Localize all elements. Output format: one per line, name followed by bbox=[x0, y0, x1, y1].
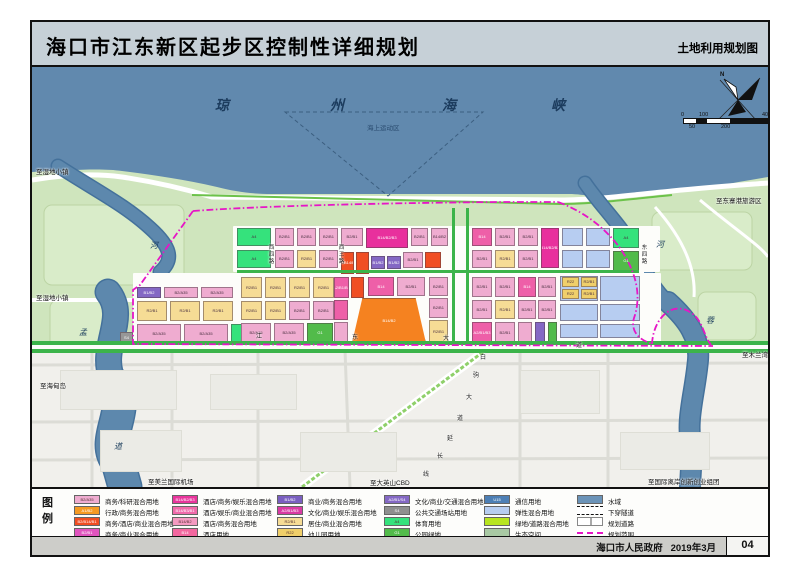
land-block: B2/A35 bbox=[201, 287, 233, 298]
land-block bbox=[560, 304, 598, 321]
planned-road-symbol bbox=[577, 517, 603, 526]
land-block: B2/B1 bbox=[538, 277, 556, 297]
land-block: B14 bbox=[472, 228, 492, 246]
destination-label: 至木兰湾 bbox=[742, 349, 768, 359]
river-name-char: 河 bbox=[656, 239, 664, 250]
legend-swatch: B2/A35 bbox=[74, 495, 100, 504]
legend-label: 商务/酒店/商业混合用地 bbox=[105, 518, 174, 528]
urban-block bbox=[620, 432, 710, 470]
legend-label: 酒店/娱乐/商业混合用地 bbox=[203, 507, 272, 517]
land-block bbox=[562, 228, 583, 246]
land-block bbox=[334, 322, 348, 343]
legend-swatch: A2/B1/S4 bbox=[384, 495, 410, 504]
river-name-char: 道 bbox=[114, 441, 122, 452]
destination-label: 至湿地小镇 bbox=[36, 166, 69, 176]
legend-swatch bbox=[484, 506, 510, 515]
vertical-road-label: 西四路 bbox=[268, 245, 275, 266]
legend-label: 通信用地 bbox=[515, 496, 541, 506]
land-block bbox=[351, 277, 364, 298]
land-block: B2/B1 bbox=[429, 277, 448, 296]
land-block: B2/B1 bbox=[472, 250, 492, 268]
land-block: R2/B1 bbox=[265, 277, 286, 298]
land-block: A4 bbox=[237, 250, 271, 268]
legend-label: 弹性混合用地 bbox=[515, 507, 554, 517]
land-block: R2/B1 bbox=[581, 289, 597, 299]
land-block: B2/A35 bbox=[274, 323, 304, 343]
river-name-char: 孟 bbox=[79, 327, 87, 338]
legend-label: 文化/商业/交通混合用地 bbox=[415, 496, 484, 506]
legend-swatch: A1/B2 bbox=[74, 506, 100, 515]
legend-label: 行政/商务混合用地 bbox=[105, 507, 159, 517]
destination-label: 至海甸岛 bbox=[40, 380, 66, 390]
land-block bbox=[334, 300, 348, 320]
road-name-char: 线 bbox=[423, 469, 429, 478]
legend-swatch bbox=[577, 495, 603, 504]
map-type-label: 土地利用规划图 bbox=[678, 40, 759, 56]
destination-label: 至东寨港旅游区 bbox=[716, 195, 762, 205]
land-block: R2/B1 bbox=[265, 301, 286, 320]
road-name-char: 大 bbox=[443, 333, 449, 342]
urban-block bbox=[60, 370, 177, 410]
land-block: B2/B1 bbox=[403, 252, 423, 268]
land-block: B14/B2 bbox=[352, 298, 426, 343]
footer-bar: 海口市人民政府 2019年3月 04 bbox=[32, 536, 768, 555]
road-name-char: 长 bbox=[437, 451, 443, 460]
urban-block bbox=[520, 370, 600, 414]
legend-swatch: B14/B2/B3 bbox=[172, 495, 198, 504]
land-block: A2/B1/B3 bbox=[334, 277, 349, 298]
land-block bbox=[548, 322, 557, 343]
scale-bar bbox=[683, 118, 768, 124]
road-name-char: 大 bbox=[466, 392, 472, 401]
legend-label: 规划道路 bbox=[608, 518, 634, 528]
land-block: B2/B1 bbox=[518, 300, 536, 319]
legend-title: 图例 bbox=[41, 495, 54, 527]
land-block: B2/B1 bbox=[411, 228, 428, 246]
legend-swatch: A2/B1/B3 bbox=[277, 506, 303, 515]
land-block: R2/B1 bbox=[289, 277, 310, 298]
land-block: B2/B1 bbox=[495, 228, 515, 246]
title-bar: 海口市江东新区起步区控制性详细规划 土地利用规划图 bbox=[32, 22, 768, 67]
land-block: B2/B1 bbox=[518, 228, 538, 246]
land-block bbox=[562, 250, 583, 268]
road-name-char: 江 bbox=[256, 331, 262, 340]
land-block: B1/B2 bbox=[137, 287, 161, 298]
land-block: B2/B1 bbox=[472, 277, 492, 297]
date-label: 2019年3月 bbox=[671, 543, 716, 554]
sea-name-char: 海 bbox=[442, 95, 456, 115]
road-name-char: 延 bbox=[447, 433, 453, 442]
land-block: B14 bbox=[368, 277, 394, 296]
land-block: B2/B1 bbox=[297, 228, 316, 246]
land-block bbox=[600, 304, 640, 321]
land-block: G1 bbox=[307, 323, 333, 343]
land-block: R2/B1 bbox=[170, 301, 200, 321]
land-block: B2/B1 bbox=[275, 250, 294, 268]
land-block: A4 bbox=[613, 228, 639, 248]
land-block bbox=[600, 276, 640, 301]
legend-swatch: U15 bbox=[484, 495, 510, 504]
legend-label: 文化/商业/娱乐混合用地 bbox=[308, 507, 377, 517]
scale-label: 50 bbox=[689, 124, 695, 130]
land-block: B2/B1 bbox=[397, 277, 425, 296]
government-label: 海口市人民政府 bbox=[596, 543, 663, 554]
urban-block bbox=[100, 430, 182, 472]
marine-zone-label: 海上运动区 bbox=[367, 122, 400, 132]
road-name-char: 东 bbox=[352, 332, 358, 341]
legend-swatch: B1/B2 bbox=[277, 495, 303, 504]
legend-swatch bbox=[484, 517, 510, 526]
legend: 图例 B2/A35商务/科研混合用地A1/B2行政/商务混合用地B2/B14/B… bbox=[32, 487, 768, 538]
plan-sheet-page: 海口市江东新区起步区控制性详细规划 土地利用规划图 bbox=[0, 0, 800, 566]
land-block: B2/B1 bbox=[313, 301, 334, 320]
land-block bbox=[425, 252, 441, 268]
land-block: B2/B1 bbox=[429, 298, 448, 318]
destination-label: 至国际离岸创新创业组团 bbox=[648, 476, 720, 486]
land-block: B1/B2 bbox=[371, 256, 385, 269]
land-block bbox=[586, 250, 610, 268]
plan-sheet: 海口市江东新区起步区控制性详细规划 土地利用规划图 bbox=[30, 20, 770, 557]
land-block: B2/B1 bbox=[275, 228, 294, 246]
sea-name-char: 州 bbox=[330, 95, 344, 115]
legend-label: 体育用地 bbox=[415, 518, 441, 528]
page-title: 海口市江东新区起步区控制性详细规划 bbox=[46, 31, 420, 60]
land-block: B2/B1 bbox=[472, 300, 492, 319]
land-block: B2/B1 bbox=[538, 300, 556, 319]
land-block: R2/B1 bbox=[297, 250, 316, 268]
legend-swatch: B14/B2 bbox=[172, 517, 198, 526]
vertical-road-label: 西三路 bbox=[338, 245, 345, 266]
land-use-map: N A4A4B2/B1B2/B1B2/B1B2/B1B14/B2/B3B2/B1… bbox=[32, 67, 768, 487]
land-block: R2/B1 bbox=[137, 301, 167, 321]
land-block: B14 bbox=[518, 277, 536, 297]
destination-label: 至湿地小镇 bbox=[36, 292, 69, 302]
land-block: A2/B1/B3 bbox=[472, 322, 492, 343]
legend-label: 公共交通场站用地 bbox=[415, 507, 467, 517]
land-block: R22 bbox=[562, 277, 579, 287]
land-block bbox=[535, 322, 545, 343]
legend-swatch: A4 bbox=[384, 517, 410, 526]
land-block: B2/B1 bbox=[495, 277, 515, 297]
legend-label: 酒店/商务混合用地 bbox=[203, 518, 257, 528]
land-block: B2/B1 bbox=[518, 250, 538, 268]
land-block bbox=[600, 324, 640, 338]
legend-label: 绿地/道路混合用地 bbox=[515, 518, 569, 528]
legend-label: 水域 bbox=[608, 496, 621, 506]
land-block: B14/B2/B3 bbox=[541, 228, 559, 268]
urban-block bbox=[210, 374, 297, 410]
land-block: B14/B2 bbox=[431, 228, 448, 246]
land-block: B14/B2/B3 bbox=[366, 228, 408, 248]
land-block bbox=[586, 228, 610, 246]
land-block: R2/B1 bbox=[495, 300, 515, 319]
legend-swatch: S4 bbox=[384, 506, 410, 515]
legend-label: 商务/科研混合用地 bbox=[105, 496, 159, 506]
land-block: R2/B1 bbox=[241, 301, 262, 320]
land-block: G1 bbox=[613, 251, 639, 271]
vertical-road-label: 东四路 bbox=[641, 245, 648, 266]
land-block: B2/B1 bbox=[341, 228, 363, 246]
destination-label: 至美兰国际机场 bbox=[148, 476, 194, 486]
urban-block bbox=[300, 432, 397, 472]
river-name-char: 蓉 bbox=[706, 315, 714, 326]
land-block: R2/B1 bbox=[495, 250, 515, 268]
legend-label: 居住/商业混合用地 bbox=[308, 518, 362, 528]
land-block: A4 bbox=[237, 228, 271, 246]
land-block bbox=[560, 324, 598, 338]
land-block: R2/B1 bbox=[313, 277, 334, 298]
page-number: 04 bbox=[726, 537, 768, 555]
land-block: B2/B1 bbox=[319, 250, 338, 268]
road-name-char: 白 bbox=[480, 352, 486, 361]
land-block bbox=[518, 322, 532, 343]
land-block: R2/B1 bbox=[203, 301, 233, 321]
legend-swatch: B2/B14/B1 bbox=[74, 517, 100, 526]
land-block: B2/A35 bbox=[164, 287, 198, 298]
sea-name-char: 峡 bbox=[551, 95, 565, 115]
svg-text:N: N bbox=[720, 72, 724, 78]
road-name-char: 道 bbox=[576, 340, 582, 349]
tunnel-symbol bbox=[577, 506, 603, 515]
scale-label: 200 bbox=[721, 124, 730, 130]
land-block: B2/B1 bbox=[289, 301, 310, 320]
destination-label: 至大英山CBD bbox=[370, 477, 410, 487]
road-name-char: 道 bbox=[457, 413, 463, 422]
road-name-char: 驹 bbox=[473, 370, 479, 379]
sea-name-char: 琼 bbox=[215, 95, 229, 115]
legend-swatch: B14/B3/B1 bbox=[172, 506, 198, 515]
land-block: R2/B1 bbox=[581, 277, 597, 287]
land-block: B1/B2 bbox=[387, 256, 401, 269]
legend-label: 商业/商务混合用地 bbox=[308, 496, 362, 506]
land-block: R22 bbox=[562, 289, 579, 299]
land-block: B2/B1 bbox=[495, 322, 515, 343]
footer-text: 海口市人民政府 2019年3月 bbox=[596, 540, 716, 554]
land-block: R2/B1 bbox=[241, 277, 262, 298]
legend-label: 下穿隧道 bbox=[608, 507, 634, 517]
legend-swatch: R2/B1 bbox=[277, 517, 303, 526]
river-name-char: 河 bbox=[150, 240, 158, 251]
land-block: B2/B1 bbox=[319, 228, 338, 246]
legend-label: 酒店/商务/娱乐混合用地 bbox=[203, 496, 272, 506]
